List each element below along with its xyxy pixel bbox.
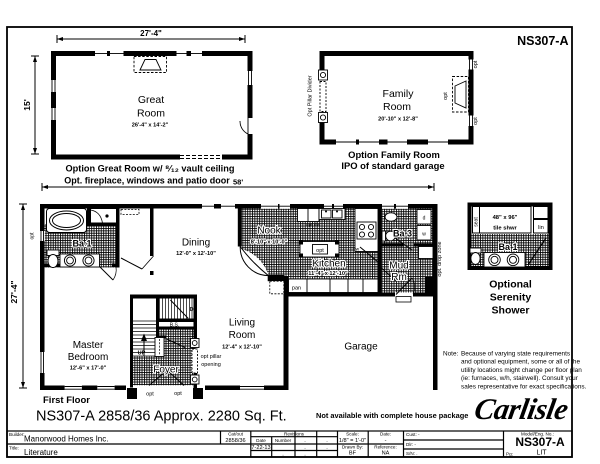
svg-text:Cat/out: Cat/out [228,432,244,437]
svg-text:Ba 1: Ba 1 [72,239,91,249]
svg-text:7-22-13: 7-22-13 [251,445,270,451]
svg-text:Number: Number [275,438,292,443]
svg-text:w: w [422,232,426,238]
svg-text:Pg:: Pg: [506,452,513,457]
svg-text:11'-4" x 12'-10": 11'-4" x 12'-10" [308,271,348,277]
svg-text:Date: Date [256,438,266,443]
svg-text:opt. drop zone: opt. drop zone [437,241,443,276]
svg-text:opt dw: opt dw [306,222,321,228]
svg-text:Garage: Garage [344,342,378,353]
svg-text:B.S.: B.S. [170,323,179,329]
svg-text:1/8" = 1'-0": 1/8" = 1'-0" [339,438,366,444]
svg-text:Builder:: Builder: [9,432,25,437]
svg-text:tile shwr: tile shwr [493,226,517,232]
svg-text:opt: opt [473,117,479,125]
svg-text:48" x 96": 48" x 96" [493,215,518,221]
svg-text:sales representative for exact: sales representative for exact specifica… [461,383,587,390]
svg-text:Foyer: Foyer [153,365,179,376]
svg-text:(ie: furnaces, w/h, stairwell): (ie: furnaces, w/h, stairwell). Consult … [461,375,579,382]
svg-text:opening: opening [201,362,221,368]
svg-text:Date:: Date: [380,432,391,437]
svg-text:NA: NA [382,451,390,457]
svg-text:20'-10" x 12'-8": 20'-10" x 12'-8" [378,117,418,123]
svg-text:Shower: Shower [492,305,530,317]
svg-text:Reference:: Reference: [374,445,396,450]
svg-text:Title:: Title: [9,446,19,451]
svg-text:Because of varying state requi: Because of varying state requirements [461,351,570,358]
svg-text:15': 15' [22,99,32,110]
svg-text:IPO of standard garage: IPO of standard garage [341,160,444,171]
svg-text:Option Great Room w/ ⁸⁄₁₂ vaul: Option Great Room w/ ⁸⁄₁₂ vault ceiling [66,164,235,174]
svg-text:Living: Living [229,318,255,329]
svg-text:12'-6" x 17'-0": 12'-6" x 17'-0" [70,366,107,372]
svg-text:lin: lin [538,225,544,231]
svg-text:pan: pan [292,286,301,292]
svg-text:UP: UP [138,351,146,357]
svg-text:and optional equipment, some o: and optional equipment, some or all of t… [461,359,580,366]
svg-text:8'-10" x 10'-0": 8'-10" x 10'-0" [251,240,288,246]
svg-text:S/N: .: S/N: . [406,451,418,456]
svg-text:Opt Pillar Divider: Opt Pillar Divider [308,75,314,116]
svg-text:DN: DN [190,307,198,313]
svg-text:opt: opt [146,392,154,398]
svg-text:LIT: LIT [536,450,547,457]
svg-text:Dlr: -: Dlr: - [406,442,416,447]
svg-text:Carlisle: Carlisle [472,392,571,426]
svg-text:Master: Master [73,340,104,351]
svg-text:opt: opt [473,60,479,68]
svg-text:Option Family Room: Option Family Room [348,149,440,160]
svg-text:Drawn By:: Drawn By: [342,445,363,450]
svg-text:Kitchen: Kitchen [312,259,345,270]
svg-text:27'-4": 27'-4" [9,280,19,303]
svg-text:Opt. fireplace, windows and pa: Opt. fireplace, windows and patio door [64,176,230,186]
svg-text:Ba 3: Ba 3 [393,229,412,239]
svg-text:Dining: Dining [182,238,210,249]
svg-text:opt: opt [30,232,36,240]
svg-text:Revisions: Revisions [284,432,305,437]
svg-text:dw: dw [353,247,360,253]
svg-text:NS307-A 2858/36 Approx. 2280: NS307-A 2858/36 Approx. 2280 Sq. Ft. [36,409,287,425]
svg-text:Serenity: Serenity [490,292,532,304]
svg-text:First Floor: First Floor [43,395,90,406]
svg-text:Cust: -: Cust: - [406,432,420,437]
svg-text:Ba 1: Ba 1 [498,242,517,252]
svg-text:Note:: Note: [443,351,458,358]
svg-text:12'-4" x 12'-10": 12'-4" x 12'-10" [222,345,262,351]
svg-text:Room: Room [137,108,165,120]
svg-text:opt pillar: opt pillar [201,354,222,360]
svg-text:Room: Room [229,330,256,341]
svg-text:27'-4": 27'-4" [140,29,162,38]
svg-text:Mud: Mud [389,261,408,272]
svg-text:-: - [385,438,387,444]
svg-text:Literature: Literature [24,448,58,457]
svg-text:Room: Room [383,101,411,113]
svg-text:26'-4" x 14'-2": 26'-4" x 14'-2" [132,123,169,129]
svg-text:opt: opt [443,92,449,100]
svg-text:NS307-A: NS307-A [515,435,565,449]
svg-text:Great: Great [138,94,164,106]
svg-text:Manorwood Homes Inc.: Manorwood Homes Inc. [24,435,108,444]
svg-text:Rm: Rm [391,272,407,283]
svg-text:BF: BF [349,451,357,457]
svg-text:utility locations might change: utility locations might change per floor… [461,367,582,374]
svg-text:58': 58' [233,178,243,187]
svg-text:12'-0" x 12'-10": 12'-0" x 12'-10" [176,251,216,257]
svg-text:opt: opt [174,391,182,397]
svg-text:opt: opt [316,248,324,254]
svg-text:Optional: Optional [489,279,532,291]
svg-text:d: d [423,216,426,222]
svg-text:Family: Family [383,88,415,100]
svg-text:seat: seat [474,217,480,227]
svg-text:Bedroom: Bedroom [68,352,109,363]
svg-text:Nook: Nook [257,226,281,237]
svg-text:NS307-A: NS307-A [517,34,568,48]
svg-text:Not available with complete ho: Not available with complete house packag… [316,411,468,420]
svg-text:Scale:: Scale: [346,432,359,437]
svg-text:2858/36: 2858/36 [225,438,245,444]
